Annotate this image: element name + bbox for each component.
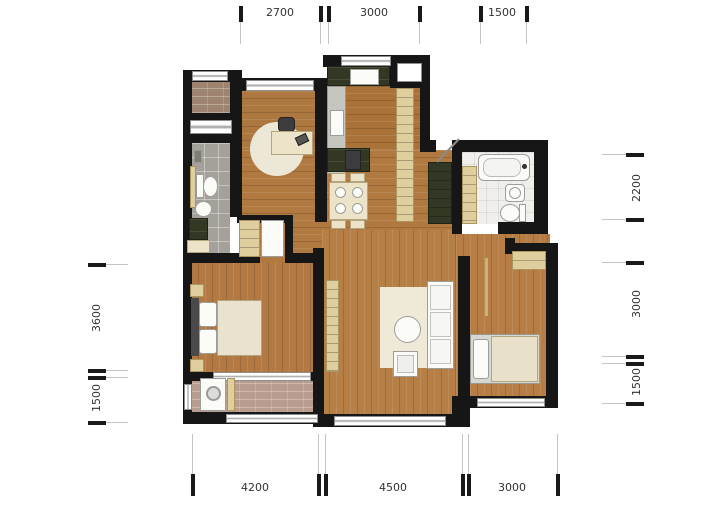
dimension-label-right-2200: 2200 [630,163,644,213]
dimension-tick [556,474,560,496]
bedroom2-wardrobe [512,251,546,270]
dimension-tick [239,6,243,22]
kitchen-sink [330,110,344,136]
dimension-tick [324,474,328,496]
extension-line [462,434,463,474]
pedestal-sink [195,201,212,217]
window [341,56,391,66]
extension-line [106,370,128,371]
tv-cabinet [326,280,339,372]
dimension-label-left-3600: 3600 [90,293,104,343]
extension-line [602,403,626,404]
wall [546,243,558,408]
dimension-label-top-3000: 3000 [349,6,399,20]
floor-plan: 2700 3000 1500 4200 4500 3000 3600 1500 … [0,0,722,510]
bed-headboard [191,298,199,356]
shower-head [194,150,202,163]
extension-line [106,422,128,423]
dimension-label-left-1500: 1500 [90,373,104,423]
dimension-label-bottom-4200: 4200 [230,481,280,495]
window [246,80,314,91]
wall [452,140,462,234]
dimension-tick [626,261,644,265]
sofa-cushion [430,312,451,337]
wall [498,222,548,234]
extension-line [480,22,481,44]
bathtub-faucet [522,164,527,169]
dining-chair [350,173,365,182]
wall [285,215,293,261]
toilet-bowl [500,204,520,222]
toilet-bowl [203,176,218,197]
shoe-cabinet [428,162,452,224]
dimension-tick [418,6,422,22]
stove [345,150,361,170]
wall [230,70,242,217]
double-bed-blanket [217,300,262,356]
extension-line [526,22,527,44]
dimension-label-bottom-4500: 4500 [368,481,418,495]
extension-line [106,264,128,265]
dimension-tick [191,474,195,496]
dining-chair [331,173,346,182]
laundry-counter [227,378,235,411]
sofa-cushion [430,339,451,364]
dimension-label-top-2700: 2700 [255,6,305,20]
wall [313,248,324,424]
hall-green-mat [189,218,208,240]
pillow [199,302,217,327]
plate [335,187,346,198]
plate [335,203,346,214]
window [192,71,228,81]
extension-line [602,363,626,364]
plate [352,187,363,198]
window [226,414,318,423]
dining-chair [331,220,346,229]
dimension-label-right-1500: 1500 [630,357,644,407]
window [190,120,232,134]
extension-line [325,434,326,474]
dimension-label-top-1500: 1500 [477,6,527,20]
ac-platform [397,63,422,82]
dimension-label-bottom-3000: 3000 [487,481,537,495]
pillow [473,339,489,379]
dimension-tick [461,474,465,496]
ottoman-top [397,355,414,373]
extension-line [106,377,128,378]
sofa-cushion [430,285,451,310]
nightstand [190,359,204,372]
dimension-tick [467,474,471,496]
wall [420,140,436,152]
kitchen-appliance [350,69,379,85]
window [184,384,192,410]
office-chair [278,117,295,132]
wall [458,256,470,402]
extension-line [320,22,321,44]
dimension-tick [317,474,321,496]
dimension-tick [319,6,323,22]
sink-basin [509,187,521,199]
extension-line [192,434,193,474]
nightstand [190,284,204,297]
extension-line [328,22,329,44]
balcony-top-left-floor [191,80,232,114]
wall [534,140,548,234]
window [477,398,545,407]
extension-line [602,262,626,263]
window [334,416,446,426]
dimension-tick [626,218,644,222]
extension-line [419,22,420,44]
plate [352,203,363,214]
extension-line [240,22,241,44]
dimension-tick [327,6,331,22]
pantry-cabinet [396,88,414,222]
dimension-label-right-3000: 3000 [630,279,644,329]
bathroom-cabinet [462,166,477,224]
extension-line [318,434,319,474]
dining-table [329,182,368,220]
extension-line [602,154,626,155]
washer-door [206,386,221,401]
hall-wardrobe [239,220,260,257]
dimension-tick [626,153,644,157]
toilet-tank [519,204,526,222]
hall-cabinet [187,240,210,253]
extension-line [602,356,626,357]
single-bed-blanket [491,336,538,382]
coffee-table [394,316,421,343]
dimension-tick [88,263,106,267]
wall [183,133,232,143]
dining-chair [350,220,365,229]
master-bedroom-door [261,220,284,257]
extension-line [468,434,469,474]
open-door-leaf [485,258,488,316]
extension-line [602,219,626,220]
bathtub-basin [483,158,521,177]
wall [315,78,327,222]
extension-line [557,434,558,474]
pillow [199,329,217,354]
